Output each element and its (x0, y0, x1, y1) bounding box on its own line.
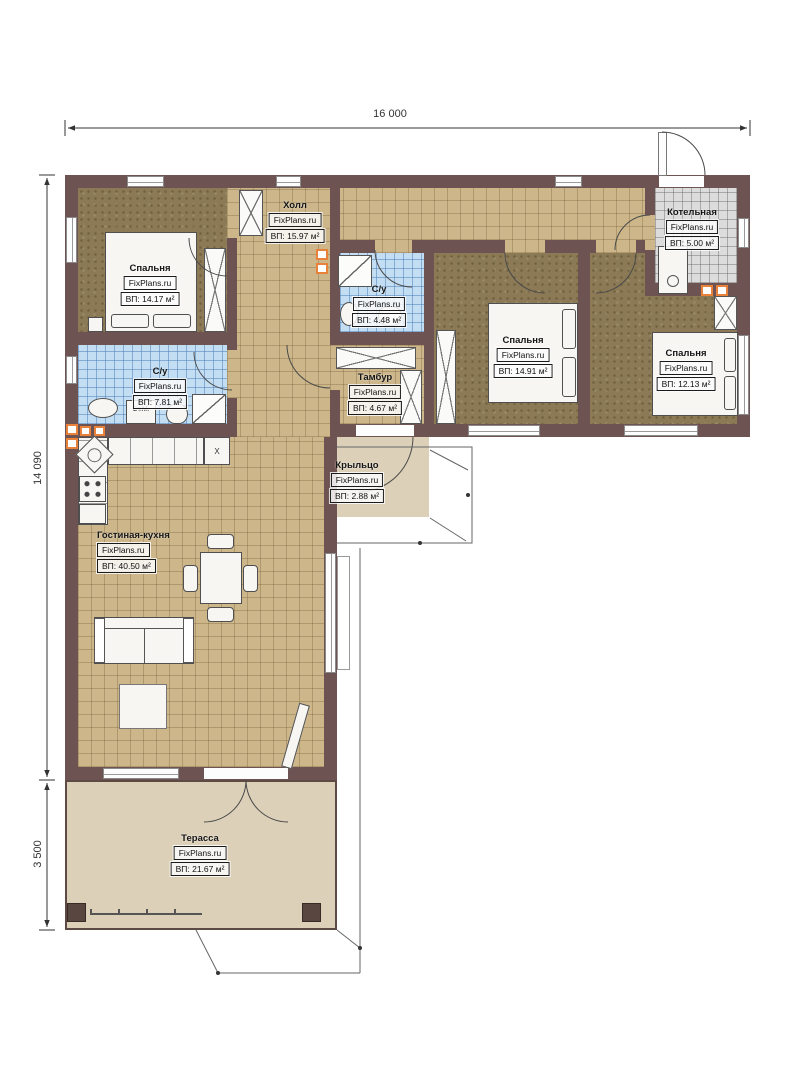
sofa-seat-divider (144, 628, 145, 663)
room-area: ВП: 14.17 м² (121, 292, 180, 306)
room-name: Тамбур (358, 372, 392, 383)
room-name: Котельная (667, 207, 717, 218)
stove (79, 476, 106, 502)
wardrobe (714, 296, 737, 330)
wardrobe (400, 370, 422, 424)
room-area: ВП: 40.50 м² (97, 559, 156, 573)
room-label-boiler: Котельная FixPlans.ru ВП: 5.00 м² (665, 207, 719, 250)
brand-watermark: FixPlans.ru (97, 543, 150, 557)
brand-watermark: FixPlans.ru (497, 348, 550, 362)
pillow (111, 314, 149, 328)
vent-marker (316, 249, 328, 260)
room-name: Терасса (181, 833, 219, 844)
vent-marker (94, 426, 105, 436)
kitchen-counter (108, 437, 204, 465)
room-name: Гостиная-кухня (97, 530, 170, 541)
sofa-arm (94, 618, 105, 663)
window (624, 425, 698, 436)
dim-height-left: 14 090 (32, 438, 44, 498)
wall (78, 332, 227, 345)
room-name: С/у (153, 366, 168, 377)
shower (338, 255, 372, 287)
brand-watermark: FixPlans.ru (269, 213, 322, 227)
window (738, 218, 749, 248)
room-area: ВП: 21.67 м² (171, 862, 230, 876)
wall (65, 175, 750, 188)
brand-watermark: FixPlans.ru (666, 220, 719, 234)
wardrobe (204, 248, 226, 332)
room-area: ВП: 12.13 м² (657, 377, 716, 391)
room-area: ВП: 4.67 м² (348, 401, 402, 415)
vent-marker (66, 438, 78, 449)
brand-watermark: FixPlans.ru (331, 473, 384, 487)
terrace-railing (90, 909, 202, 915)
dim-terrace-left: 3 500 (32, 824, 44, 884)
wardrobe (436, 330, 456, 424)
wall (227, 238, 237, 350)
room-name: Крыльцо (335, 460, 378, 471)
room-area: ВП: 2.88 м² (330, 489, 384, 503)
wall (335, 332, 424, 345)
wall (330, 390, 340, 424)
pillow (562, 309, 576, 349)
entry-door-opening (659, 176, 704, 187)
brand-watermark: FixPlans.ru (174, 846, 227, 860)
wall (65, 175, 78, 780)
kitchen-unit: X (204, 437, 230, 465)
room-area: ВП: 15.97 м² (266, 229, 325, 243)
room-name: Спальня (665, 348, 706, 359)
wall (330, 240, 375, 253)
room-label-bedroom1: Спальня FixPlans.ru ВП: 14.17 м² (121, 263, 180, 306)
window (66, 356, 77, 384)
wall (645, 188, 655, 215)
hall-closet (239, 190, 263, 236)
window (555, 176, 582, 187)
room-label-hall: Холл FixPlans.ru ВП: 15.97 м² (266, 200, 325, 243)
wall (578, 253, 590, 424)
sofa (94, 617, 194, 664)
chair (207, 534, 234, 549)
brand-watermark: FixPlans.ru (134, 379, 187, 393)
shower (192, 394, 226, 424)
room-label-tambur: Тамбур FixPlans.ru ВП: 4.67 м² (348, 372, 402, 415)
wall (645, 250, 655, 283)
wall (424, 253, 434, 424)
window (276, 176, 301, 187)
wall (227, 398, 237, 424)
terrace-post (302, 903, 321, 922)
entry-door-leaf (658, 132, 667, 176)
pillow (724, 338, 736, 372)
sink (88, 398, 118, 418)
dim-width-top: 16 000 (355, 108, 425, 120)
room-area: ВП: 4.48 м² (352, 313, 406, 327)
room-label-bedroom3: Спальня FixPlans.ru ВП: 12.13 м² (657, 348, 716, 391)
oven (79, 504, 106, 524)
chair (183, 565, 198, 592)
pillow (562, 357, 576, 397)
chair (207, 607, 234, 622)
room-name: Холл (283, 200, 307, 211)
room-label-living: Гостиная-кухня FixPlans.ru ВП: 40.50 м² (97, 530, 170, 573)
vent-marker (80, 426, 91, 436)
window (127, 176, 164, 187)
vent-marker (316, 263, 328, 274)
wardrobe (336, 347, 416, 369)
chair (243, 565, 258, 592)
room-area: ВП: 5.00 м² (665, 236, 719, 250)
pillow (153, 314, 191, 328)
sofa-arm (183, 618, 194, 663)
room-label-porch: Крыльцо FixPlans.ru ВП: 2.88 м² (330, 460, 384, 503)
brand-watermark: FixPlans.ru (349, 385, 402, 399)
window (468, 425, 540, 436)
wall (545, 240, 596, 253)
brand-watermark: FixPlans.ru (660, 361, 713, 375)
dining-table (200, 552, 242, 604)
terrace-door-opening (204, 768, 288, 779)
window (103, 768, 179, 779)
window (738, 335, 749, 415)
brand-watermark: FixPlans.ru (353, 297, 406, 311)
pillow (724, 376, 736, 410)
window-sill (337, 556, 350, 670)
room-area: ВП: 7.81 м² (133, 395, 187, 409)
vent-marker (701, 285, 713, 296)
room-name: Спальня (502, 335, 543, 346)
room-area: ВП: 14.91 м² (494, 364, 553, 378)
vent-marker (716, 285, 728, 296)
room-label-terrace: Терасса FixPlans.ru ВП: 21.67 м² (171, 833, 230, 876)
brand-watermark: FixPlans.ru (124, 276, 177, 290)
wall (636, 240, 645, 253)
room-label-bath2: С/у FixPlans.ru ВП: 4.48 м² (352, 284, 406, 327)
room-name: С/у (372, 284, 387, 295)
vent-marker (66, 424, 78, 435)
boiler (658, 246, 688, 294)
room-label-bath1: С/у FixPlans.ru ВП: 7.81 м² (133, 366, 187, 409)
wall (412, 240, 505, 253)
window (66, 217, 77, 263)
room-name: Спальня (129, 263, 170, 274)
porch-door-opening (356, 425, 414, 436)
floor-plan: Ст.М. X (0, 0, 792, 1080)
window (325, 553, 336, 673)
room-label-bedroom2: Спальня FixPlans.ru ВП: 14.91 м² (494, 335, 553, 378)
terrace-post (67, 903, 86, 922)
coffee-table (119, 684, 167, 729)
nightstand (88, 317, 103, 332)
